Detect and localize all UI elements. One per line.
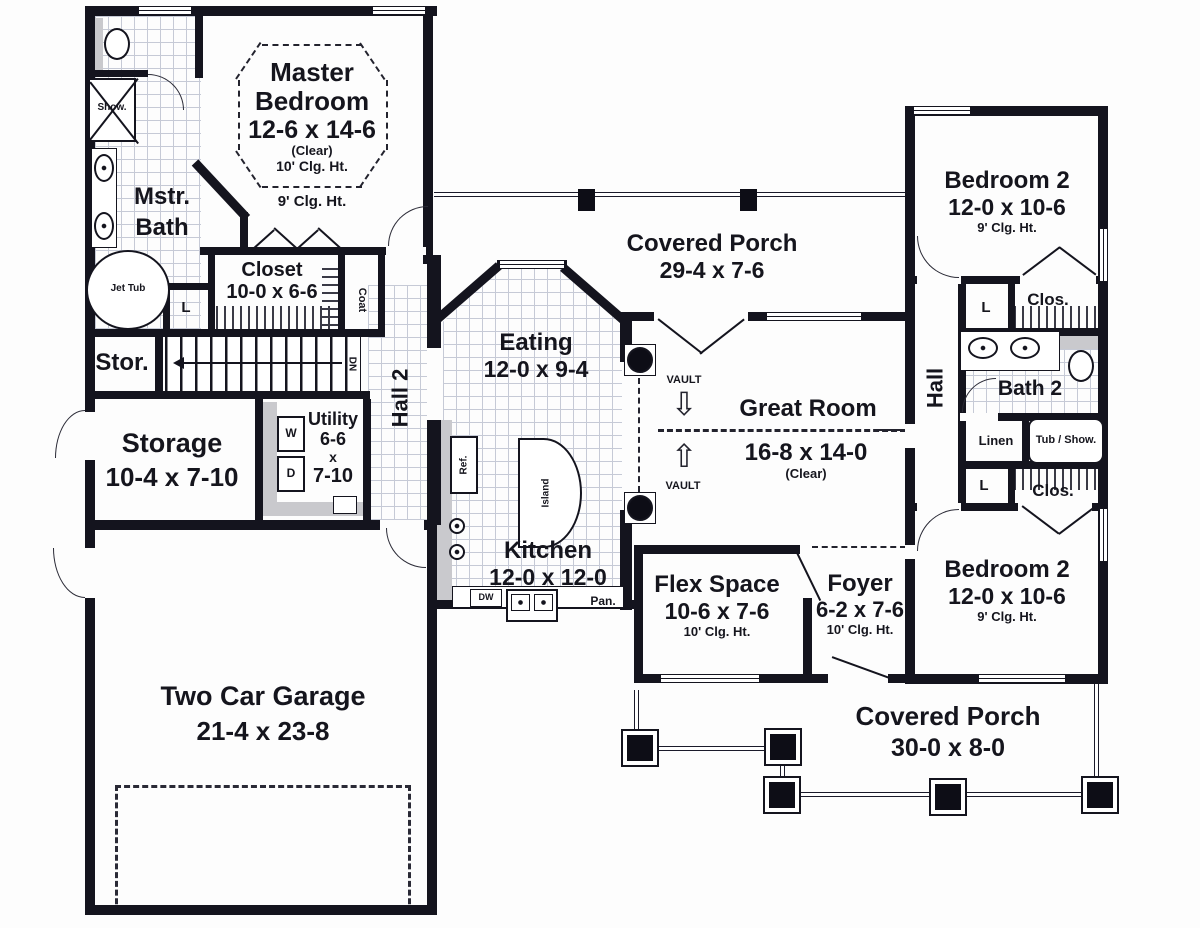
wall [85,391,370,399]
linen-label: Linen [979,434,1014,449]
room-name: Two Car Garage [160,678,365,714]
utility-counter [263,402,277,514]
round-column [627,495,653,521]
water-heater [333,496,357,514]
room-name: Covered Porch [627,231,798,258]
toilet [1068,350,1094,382]
portal-opening [427,348,441,420]
cooktop-burner [449,544,465,560]
window [660,674,760,683]
portal-opening [905,545,915,559]
hall2-label: Hall 2 [389,369,414,428]
room-ceiling: 9' Clg. Ht. [944,610,1069,625]
vault-arrow-up-icon: ⇧ [671,440,698,472]
bifold-door-leaf [1058,246,1096,276]
washer-label: W [285,427,296,440]
wall [378,255,385,333]
door-opening [1020,276,1096,284]
porch-post [578,189,595,211]
room-dims: 12-0 x 10-6 [944,195,1069,221]
room-dims: 21-4 x 23-8 [160,714,365,749]
window [138,6,192,15]
great-room-dims-label: 16-8 x 14-0 (Clear) [745,440,868,481]
bifold-door-leaf [1022,247,1060,277]
wall [338,251,345,333]
bifold-door-leaf [317,227,341,249]
dishwasher-label: DW [479,592,494,602]
porch-column [623,731,657,765]
sink-basin [511,594,530,611]
tray-ceiling-dashed [262,44,362,46]
wall [88,70,148,77]
portal-opening [905,424,915,448]
porch-railing [634,690,639,734]
room-dims: 29-4 x 7-6 [627,258,798,284]
stairs-dn-label: DN [346,357,357,371]
round-column [627,347,653,373]
master-bath-label: Mstr. Bath [116,181,208,243]
utility-label: Utility 6-6 x 7-10 [308,410,358,487]
room-dims: 12-0 x 12-0 [489,565,607,591]
door-arc [55,410,85,458]
foyer-label: Foyer 6-2 x 7-6 10' Clg. Ht. [816,571,904,637]
closet-upper-label: Clos. [1027,290,1069,309]
wall [1008,283,1015,333]
closet-lower-label: Clos. [1032,481,1074,500]
porch-column [765,778,799,812]
room-dims: 10-6 x 7-6 [654,599,779,625]
master-bedroom-label: Master Bedroom 12-6 x 14-6 (Clear) 10' C… [212,58,412,174]
wall [634,545,643,683]
room-name: Flex Space [654,572,779,599]
floor-plan: Master Bedroom 12-6 x 14-6 (Clear) 10' C… [0,0,1200,928]
stor-label: Stor. [95,350,148,377]
tray-ceiling-dashed [262,186,362,188]
door-arc [917,236,959,278]
bedroom2-lower-label: Bedroom 2 12-0 x 10-6 9' Clg. Ht. [944,557,1069,624]
room-name: Covered Porch [856,700,1041,733]
cooktop-burner [449,518,465,534]
fridge-label: Ref. [458,456,469,475]
bath2-label: Bath 2 [998,377,1062,401]
dryer-label: D [287,467,296,480]
wall [255,399,263,524]
room-name: Storage [106,426,239,461]
door-arc [917,509,959,551]
porch-column [931,780,965,814]
sink [1010,337,1040,359]
door-arc [386,528,426,568]
room-ceiling: 10' Clg. Ht. [816,623,904,638]
door-opening [654,312,748,321]
porch-column [1083,778,1117,812]
coat-label: Coat [356,288,368,312]
room-name: Bedroom 2 [944,168,1069,195]
room-dims: 12-0 x 9-4 [484,357,589,383]
porch-railing [655,746,768,751]
room-name: Bedroom 2 [944,557,1069,584]
room-dims: 10-0 x 6-6 [226,281,317,303]
window [499,260,565,269]
french-door-leaf [657,318,703,354]
wall [427,530,437,915]
wall [905,106,915,684]
door-arc [388,206,428,246]
vault-edge-dashed-line [638,378,640,492]
sink [94,212,114,240]
island-label: Island [540,479,551,508]
wall [195,16,203,78]
room-dims: 12-0 x 10-6 [944,584,1069,610]
stairs-direction-line [184,362,342,364]
ceiling-break-dashed-line [812,546,906,548]
rear-porch-edge [434,192,908,197]
room-dims: 30-0 x 8-0 [856,733,1041,764]
vault-label-lower: VAULT [665,480,700,492]
garage-label: Two Car Garage 21-4 x 23-8 [160,678,365,750]
door-opening [960,413,998,421]
linen-abbr-label: L [181,300,190,317]
ridge-dashed-line [658,429,906,432]
pantry-label: Pan. [590,595,615,608]
room-ceiling: 10' Clg. Ht. [212,159,412,175]
window [978,674,1066,683]
wall [640,545,800,554]
french-door-leaf [699,318,745,354]
closet-rod-hatch [216,306,336,330]
eating-label: Eating 12-0 x 9-4 [484,330,589,383]
shower-label: Show. [97,102,126,113]
room-clear: (Clear) [212,144,412,159]
door-opening [85,412,95,460]
window [1099,508,1108,562]
room-ceiling: 10' Clg. Ht. [654,625,779,640]
room-name: Kitchen [489,538,607,565]
flex-space-label: Flex Space 10-6 x 7-6 10' Clg. Ht. [654,572,779,639]
stairs [165,337,361,391]
wall [1098,106,1108,684]
wall [163,283,211,290]
wall [85,6,95,915]
stairs-arrow [173,357,184,369]
linen-abbr-label: L [981,300,990,317]
room-dims: 12-6 x 14-6 [212,116,412,144]
porch-column [766,730,800,764]
hall-label: Hall [924,368,949,408]
door-opening [386,247,426,255]
room-dims: 16-8 x 14-0 [745,440,868,467]
vault-arrow-down-icon: ⇩ [671,388,698,420]
sink-basin [534,594,553,611]
sink [94,154,114,182]
sink [968,337,998,359]
porch-post [740,189,757,211]
wall [155,337,163,393]
wall [85,905,437,915]
room-dim-w: 6-6 [308,430,358,450]
room-ceiling: 9' Clg. Ht. [944,221,1069,236]
storage-label: Storage 10-4 x 7-10 [106,426,239,495]
room-name: Eating [484,330,589,357]
bedroom2-upper-label: Bedroom 2 12-0 x 10-6 9' Clg. Ht. [944,168,1069,235]
porch-railing [1094,684,1099,780]
room-name: Foyer [816,571,904,598]
window [372,6,426,15]
room-dims: 10-4 x 7-10 [106,461,239,495]
linen-abbr-label: L [979,478,988,495]
great-room-label: Great Room [739,396,876,423]
kitchen-label: Kitchen 12-0 x 12-0 [489,538,607,591]
bifold-door-leaf [273,227,297,249]
window [766,312,862,321]
room-clear: (Clear) [745,467,868,482]
jet-tub-label: Jet Tub [111,283,146,294]
room-by: x [308,450,358,465]
rear-porch-label: Covered Porch 29-4 x 7-6 [627,231,798,284]
door-arc [53,548,85,598]
wall [803,598,812,682]
wall [363,399,371,524]
room-name: Master Bedroom [255,57,369,116]
porch-railing [963,792,1085,797]
room-name: Closet [226,259,317,281]
room-name: Utility [308,410,358,430]
garage-door-dashed [115,785,411,913]
toilet [104,28,130,60]
master-bedroom-outer-ceiling-label: 9' Clg. Ht. [278,194,347,211]
closet-rod-hatch [1014,306,1098,328]
door-opening [85,548,95,598]
porch-railing [797,792,933,797]
opening-dashed-line [878,429,908,431]
wall [208,251,215,333]
tub-shower-label: Tub / Show. [1036,434,1097,446]
master-closet-label: Closet 10-0 x 6-6 [226,259,317,304]
room-dim-h: 7-10 [308,465,358,487]
window [1099,228,1108,282]
front-porch-label: Covered Porch 30-0 x 8-0 [856,700,1041,764]
window [913,106,971,115]
room-dims: 6-2 x 7-6 [816,598,904,623]
